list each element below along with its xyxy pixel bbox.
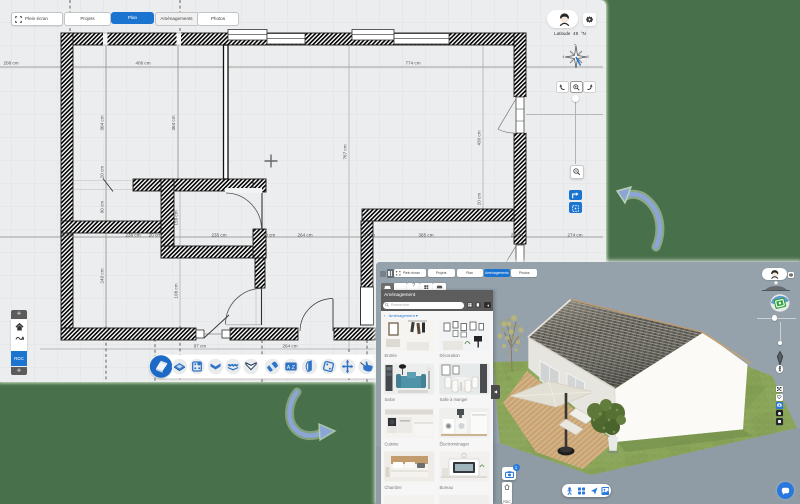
svg-text:30 cm: 30 cm <box>263 233 276 238</box>
svg-text:20 cm: 20 cm <box>149 233 162 238</box>
svg-text:90 cm: 90 cm <box>100 201 105 214</box>
svg-text:Chambre: Chambre <box>384 485 402 490</box>
svg-text:240 cm: 240 cm <box>100 268 105 283</box>
svg-text:A: A <box>287 365 291 371</box>
svg-text:Entrée: Entrée <box>384 353 397 358</box>
svg-text:208 cm: 208 cm <box>3 61 18 66</box>
svg-text:158 cm: 158 cm <box>174 210 179 225</box>
svg-text:Cuisine: Cuisine <box>384 442 399 447</box>
svg-text:430 cm: 430 cm <box>477 130 482 145</box>
svg-text:20 cm: 20 cm <box>477 193 482 206</box>
svg-text:4: 4 <box>563 55 565 59</box>
svg-text:5: 5 <box>575 43 577 47</box>
svg-text:Z: Z <box>292 365 295 371</box>
svg-text:108 cm: 108 cm <box>174 283 179 298</box>
svg-text:30 cm: 30 cm <box>60 233 73 238</box>
svg-text:236 cm: 236 cm <box>125 233 140 238</box>
svg-text:767 cm: 767 cm <box>343 144 348 159</box>
svg-text:Bureau: Bureau <box>439 485 453 490</box>
svg-text:20 cm: 20 cm <box>100 166 105 179</box>
svg-text:20 cm: 20 cm <box>363 233 376 238</box>
svg-text:Électroménager: Électroménager <box>439 442 469 447</box>
svg-text:364 cm: 364 cm <box>171 115 176 130</box>
svg-text:264 cm: 264 cm <box>297 233 312 238</box>
svg-text:406 cm: 406 cm <box>135 61 150 66</box>
svg-text:Salle à manger: Salle à manger <box>439 397 468 402</box>
svg-text:20 cm: 20 cm <box>511 233 524 238</box>
svg-text:Salon: Salon <box>384 397 395 402</box>
svg-text:774 cm: 774 cm <box>405 61 420 66</box>
svg-text:Décoration: Décoration <box>439 353 460 358</box>
svg-text:0: 0 <box>587 55 589 59</box>
svg-text:385 cm: 385 cm <box>418 233 433 238</box>
svg-text:364 cm: 364 cm <box>100 115 105 130</box>
svg-text:235 cm: 235 cm <box>211 233 226 238</box>
